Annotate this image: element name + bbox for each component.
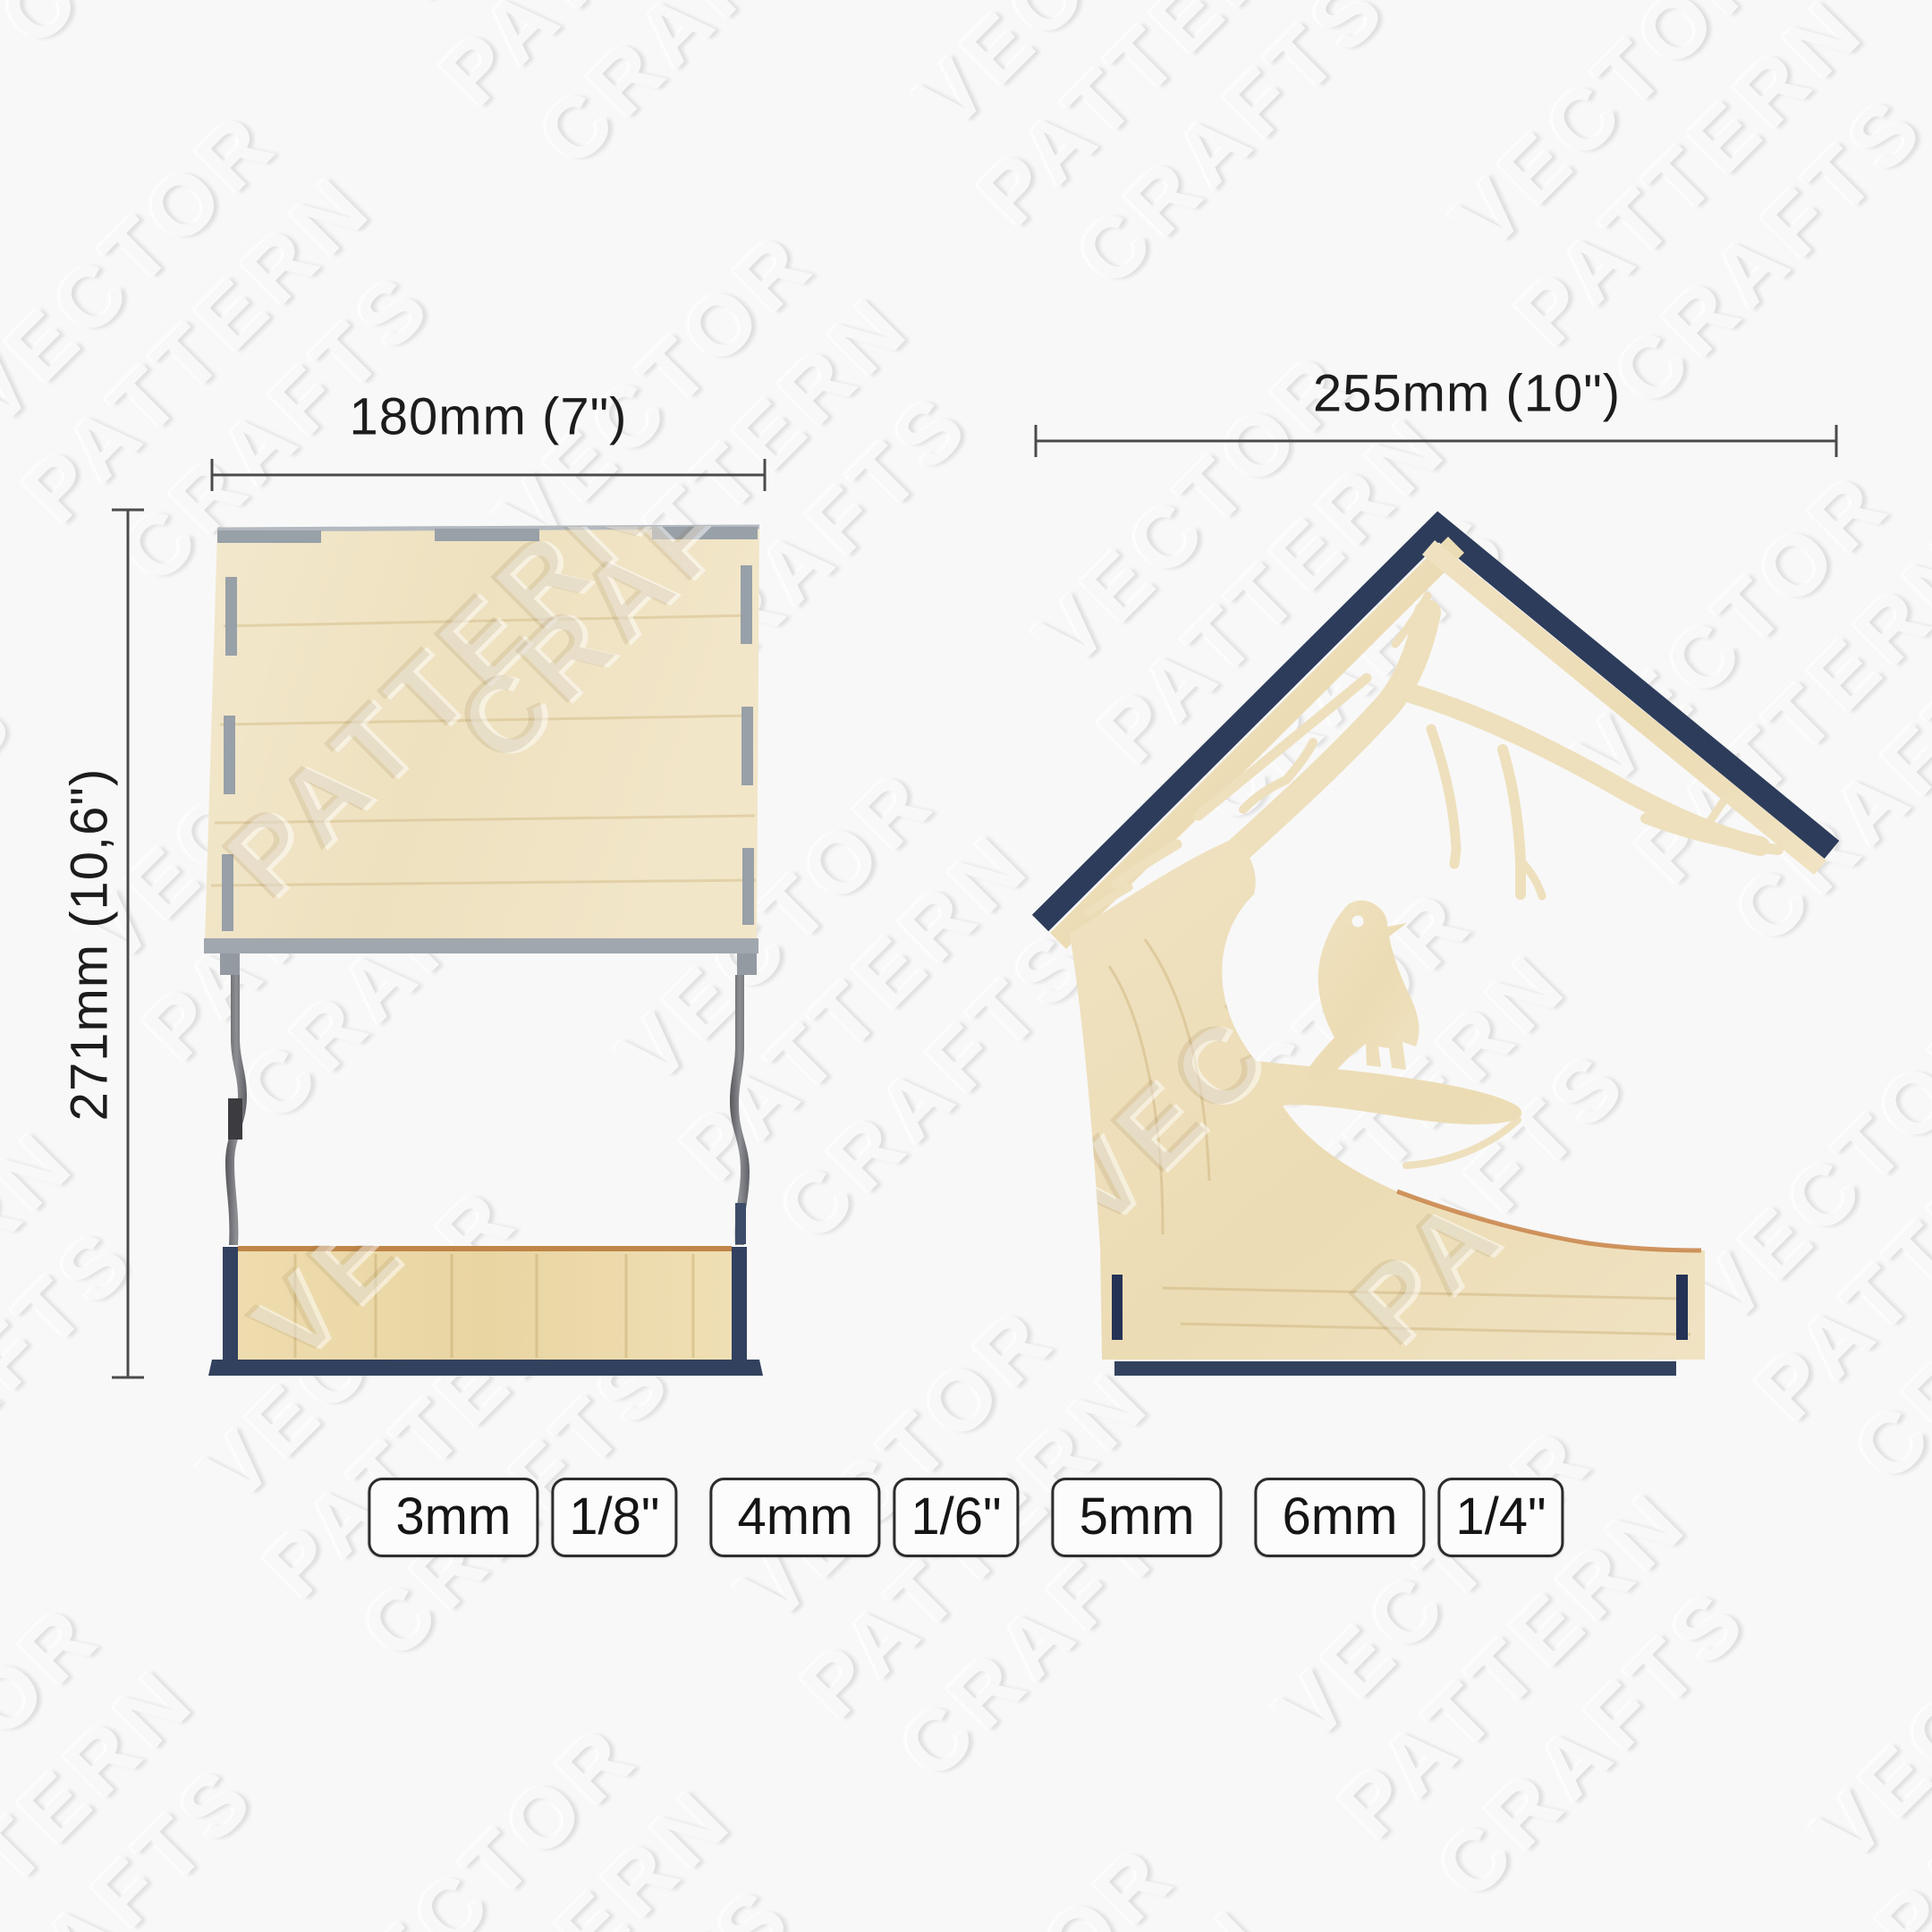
bird-feeder-drawing: PATTERN PATTERN CRAFTS CRAFTS VECTOR VEC…: [0, 0, 1932, 1932]
front-left-wall-notch: [228, 1098, 242, 1140]
bird-cutout: [1306, 901, 1419, 1084]
thickness-badge-3mm: 3mm: [368, 1478, 538, 1557]
thickness-badge-5mm: 5mm: [1052, 1478, 1223, 1557]
front-base-plate: [208, 1360, 763, 1376]
front-roof-edge-strip: [204, 938, 758, 953]
side-base-plate: [1114, 1361, 1676, 1376]
side-roof-edge: [1040, 527, 1832, 923]
front-right-wall-notch: [735, 1203, 746, 1244]
thickness-badge-1-8in: 1/8": [551, 1478, 677, 1557]
side-roof-strip-right: [1422, 540, 1826, 875]
side-tray-slot-right: [1676, 1275, 1688, 1340]
product-dimension-sheet: VECTORPATTERNCRAFTSVECTORPATTERNCRAFTSVE…: [0, 0, 1932, 1932]
front-width-label: 180mm (7"): [350, 387, 628, 447]
side-width-label: 255mm (10"): [1313, 364, 1621, 424]
bird-eye-hole: [1352, 916, 1364, 928]
thickness-badge-6mm: 6mm: [1255, 1478, 1426, 1557]
thickness-badge-1-4in: 1/4": [1437, 1478, 1563, 1557]
side-roof-strip-left: [1050, 537, 1464, 949]
front-left-tab: [220, 953, 240, 975]
side-tray-slot-left: [1112, 1275, 1123, 1340]
thickness-badge-1-6in: 1/6": [893, 1478, 1019, 1557]
front-height-label: 271mm (10,6"): [60, 768, 120, 1122]
thickness-options-row: 3mm 1/8" 4mm 1/6" 5mm 6mm 1/4": [368, 1478, 1563, 1557]
thickness-badge-4mm: 4mm: [710, 1478, 881, 1557]
front-tray-right-edge: [732, 1247, 747, 1360]
front-right-tab: [737, 953, 757, 975]
